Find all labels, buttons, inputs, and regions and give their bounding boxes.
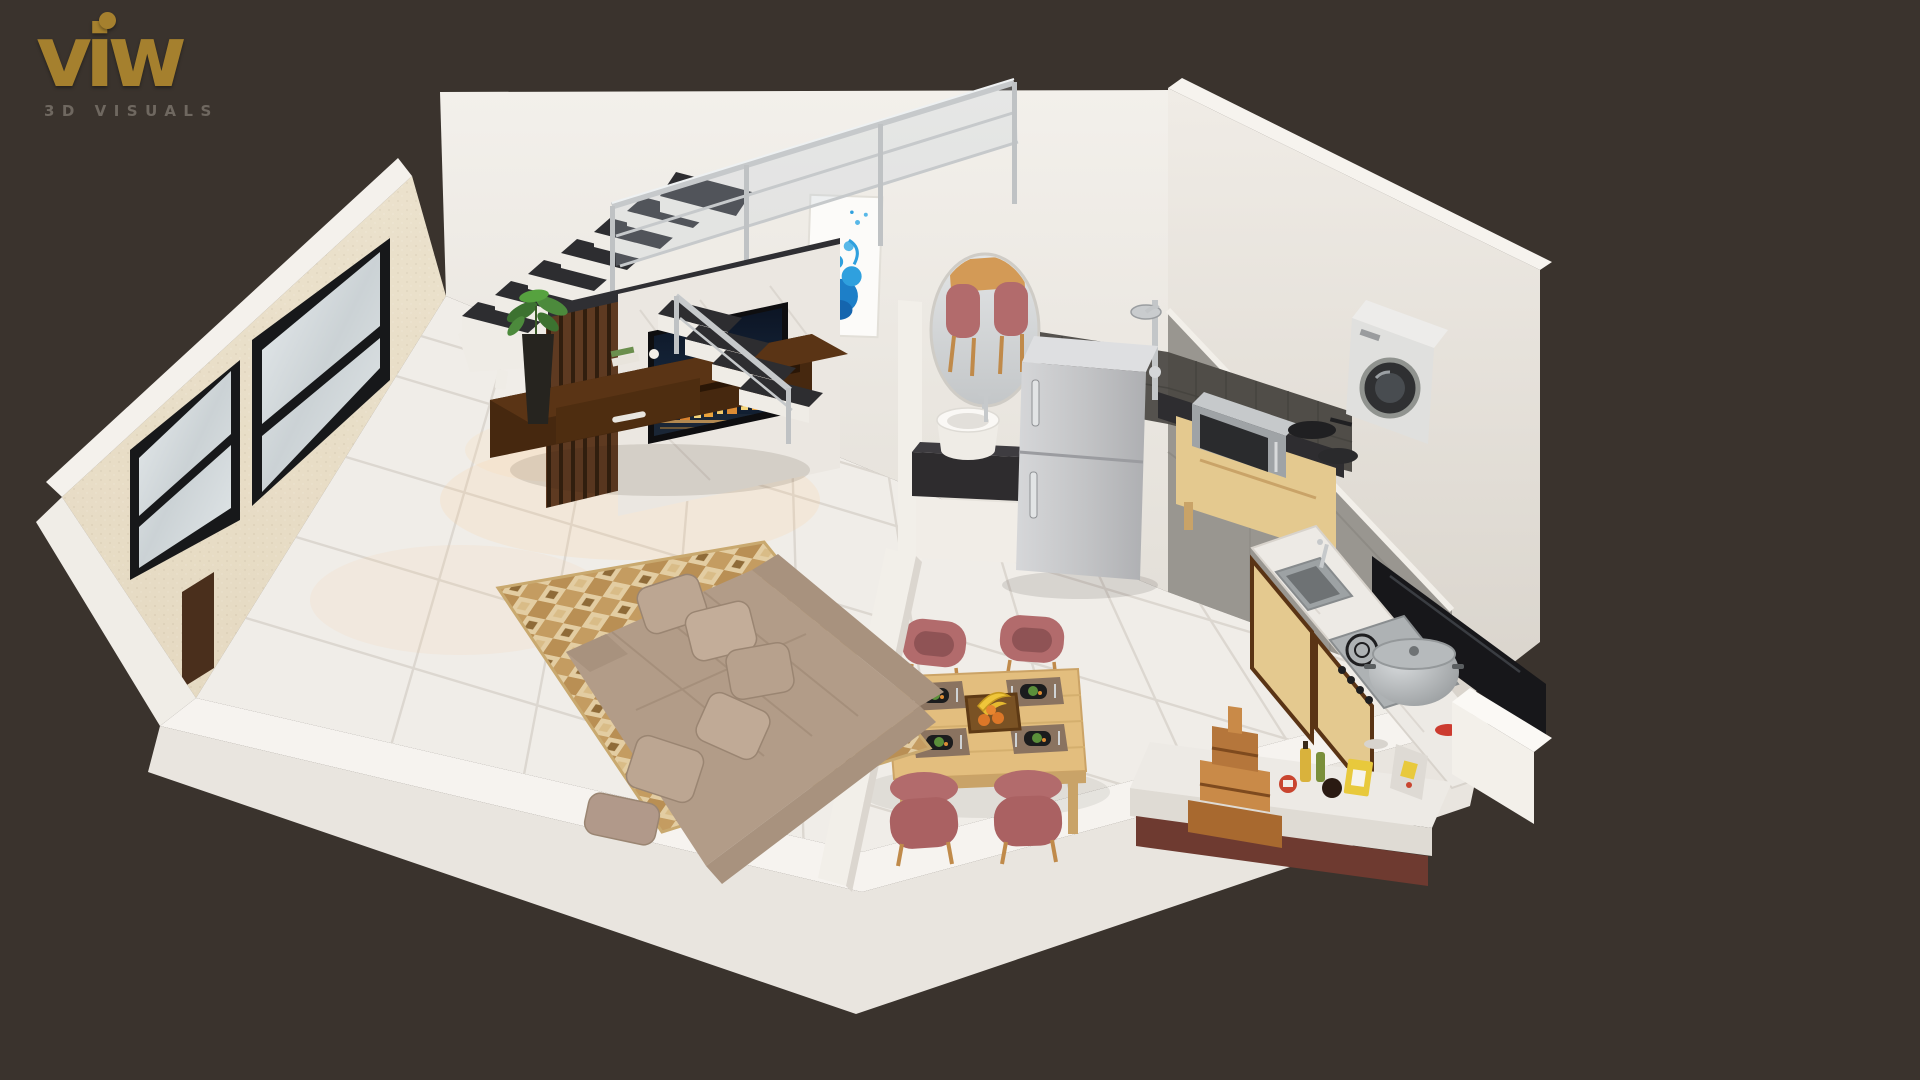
logo: viw 3D VISUALS xyxy=(36,14,219,120)
render-stage: viw 3D VISUALS xyxy=(0,0,1920,1080)
fruit-tray xyxy=(966,693,1020,732)
door-frame xyxy=(182,572,214,688)
logo-dot-icon xyxy=(99,12,116,29)
logo-mark: viw xyxy=(36,14,180,100)
refrigerator xyxy=(1002,336,1158,599)
floorplan-3d-scene xyxy=(0,0,1920,1080)
